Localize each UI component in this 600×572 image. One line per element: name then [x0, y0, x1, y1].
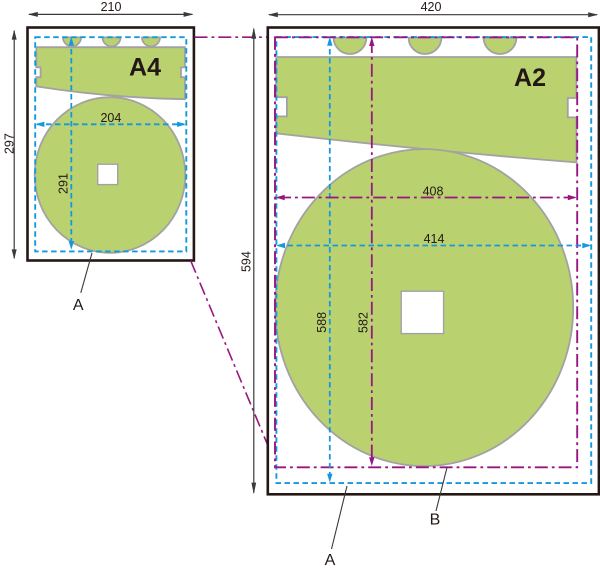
svg-text:420: 420 — [421, 0, 442, 14]
svg-text:291: 291 — [56, 173, 70, 194]
svg-text:A: A — [325, 552, 336, 569]
svg-text:414: 414 — [424, 232, 445, 246]
svg-text:582: 582 — [357, 312, 371, 333]
svg-text:210: 210 — [101, 0, 122, 14]
svg-text:297: 297 — [3, 133, 17, 154]
svg-text:A4: A4 — [129, 54, 161, 82]
svg-text:A2: A2 — [514, 64, 546, 92]
svg-text:408: 408 — [423, 184, 444, 198]
svg-text:A: A — [73, 297, 84, 314]
svg-text:204: 204 — [100, 111, 121, 125]
svg-text:588: 588 — [315, 312, 329, 333]
svg-text:594: 594 — [239, 251, 253, 272]
svg-text:B: B — [430, 512, 441, 529]
